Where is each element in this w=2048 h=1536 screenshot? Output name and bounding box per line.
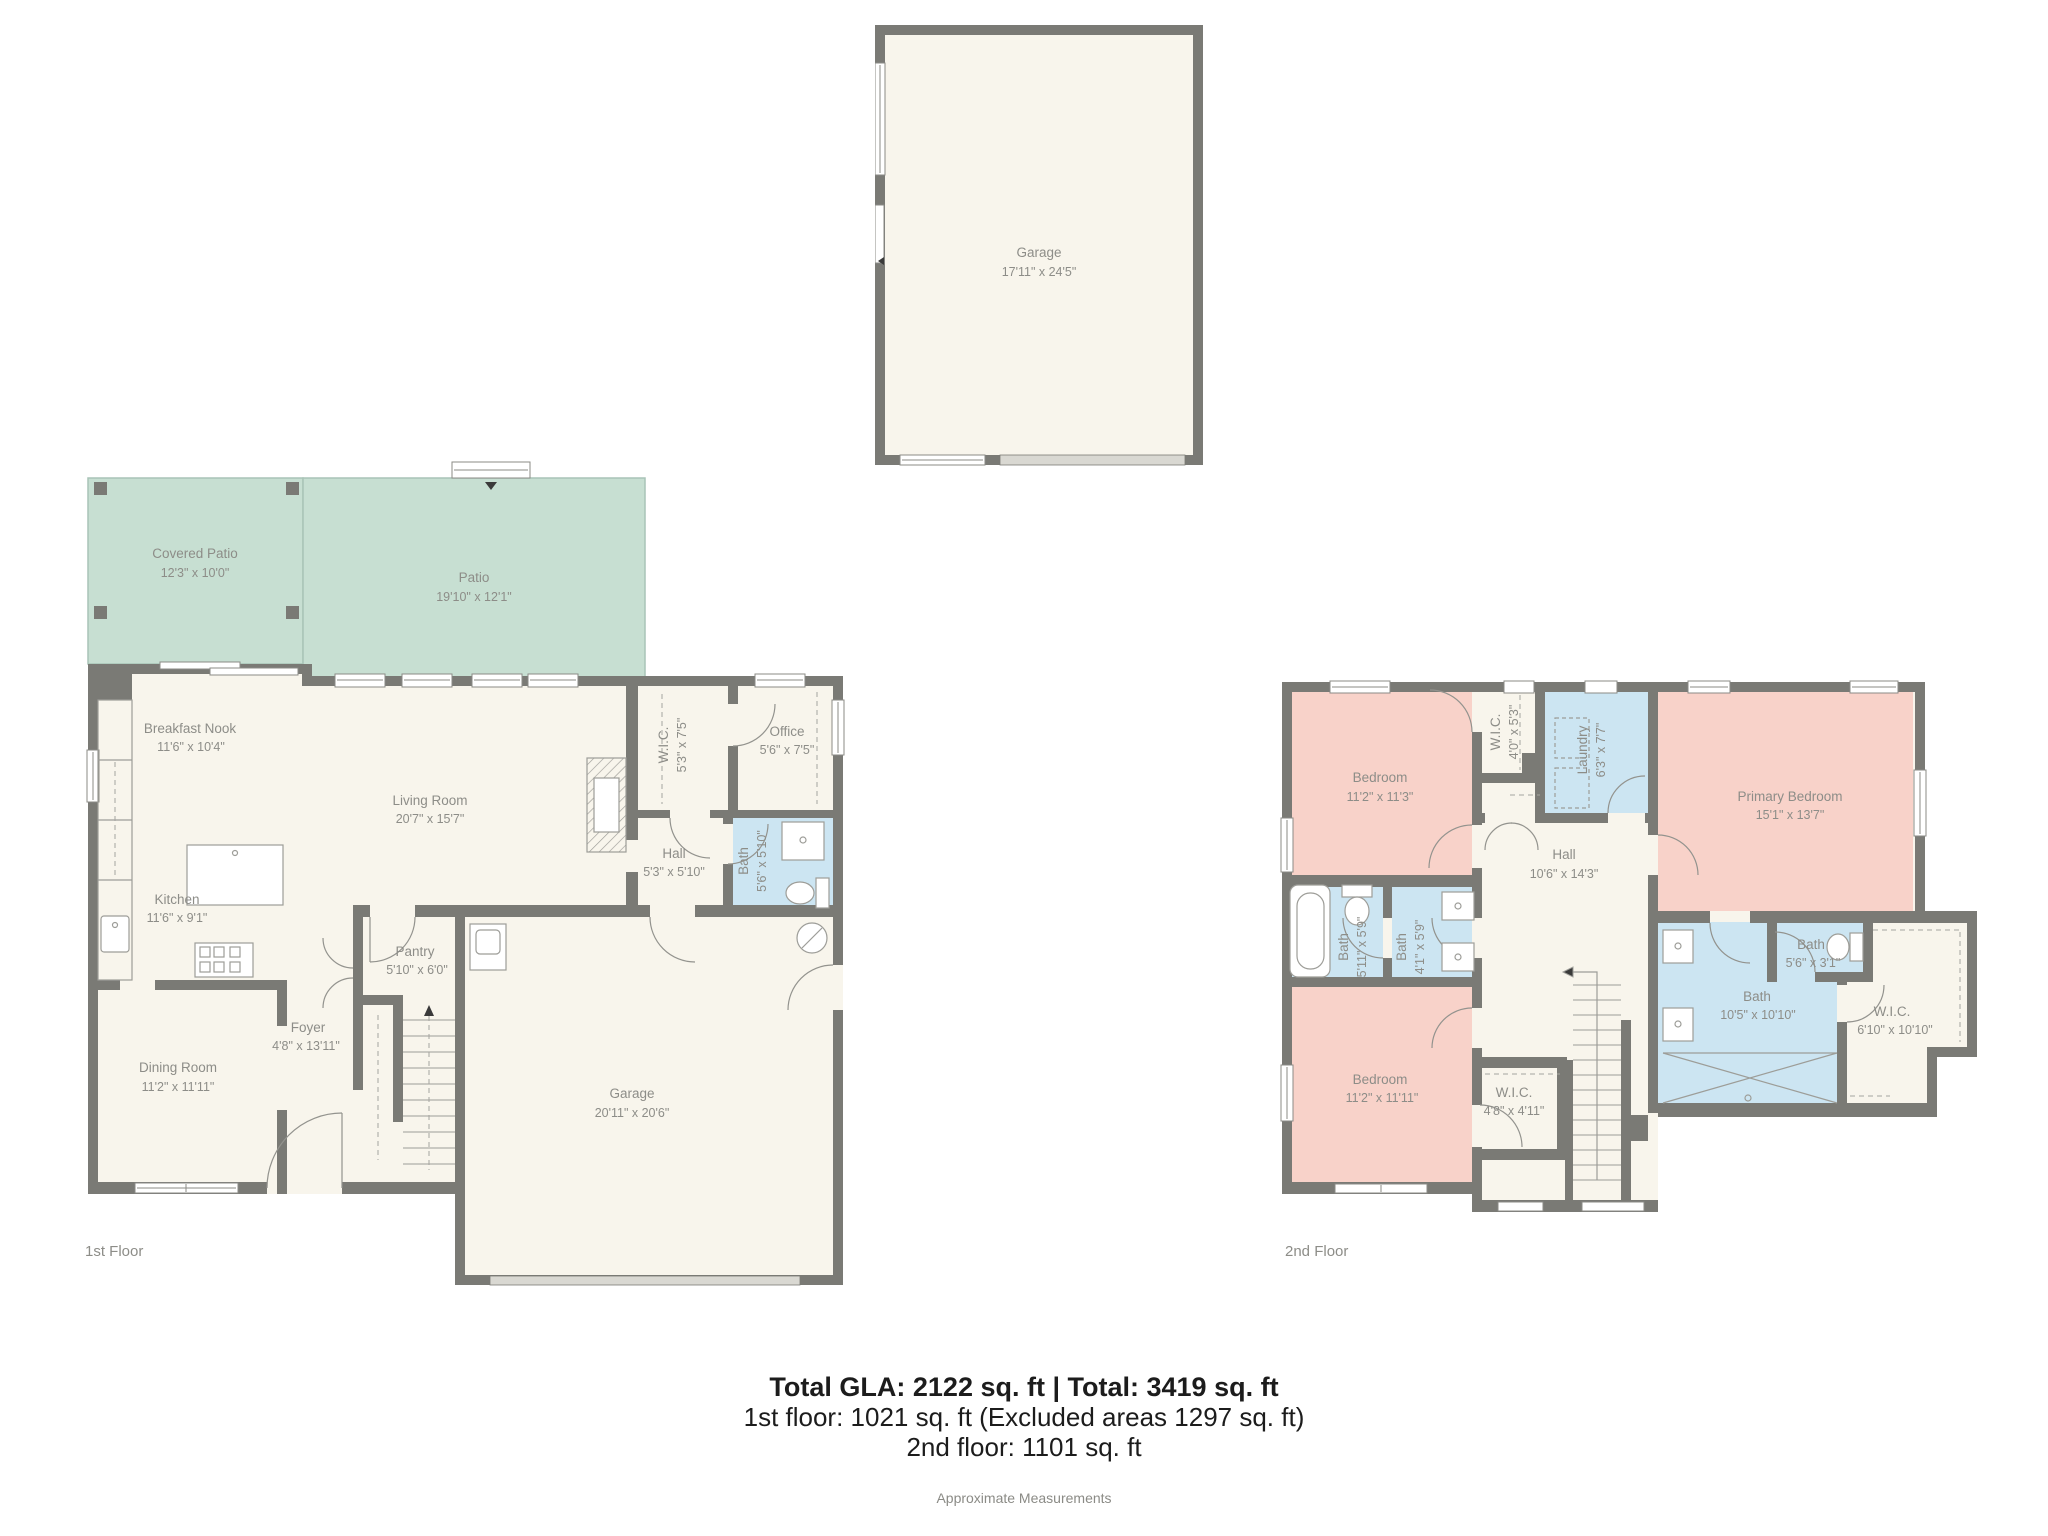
svg-text:Bath: Bath (1743, 989, 1771, 1004)
svg-text:Covered Patio: Covered Patio (152, 546, 238, 561)
svg-text:Hall: Hall (1552, 847, 1575, 862)
svg-text:17'11" x 24'5": 17'11" x 24'5" (1002, 265, 1077, 279)
svg-text:Foyer: Foyer (291, 1020, 326, 1035)
svg-text:4'0" x 5'3": 4'0" x 5'3" (1507, 705, 1521, 760)
detached-garage-plan: Garage 17'11" x 24'5" (875, 25, 1205, 470)
svg-text:5'10" x 6'0": 5'10" x 6'0" (386, 963, 448, 977)
svg-text:Laundry: Laundry (1575, 725, 1590, 774)
sink-icon (782, 822, 824, 860)
svg-text:W.I.C.: W.I.C. (1874, 1004, 1911, 1019)
svg-text:5'6" x 7'5": 5'6" x 7'5" (760, 743, 815, 757)
svg-text:Garage: Garage (1016, 245, 1061, 260)
svg-text:19'10" x 12'1": 19'10" x 12'1" (436, 590, 512, 604)
svg-text:11'6" x 10'4": 11'6" x 10'4" (157, 740, 225, 754)
first-floor-plan: Covered Patio 12'3" x 10'0" Patio 19'10"… (60, 460, 860, 1290)
floorplan-page: Garage 17'11" x 24'5" (0, 0, 2048, 1536)
total-gla: Total GLA: 2122 sq. ft | Total: 3419 sq.… (0, 1372, 2048, 1402)
second-floor-caption: 2nd Floor (1285, 1243, 1348, 1260)
svg-text:Office: Office (769, 724, 804, 739)
svg-text:Hall: Hall (662, 846, 685, 861)
svg-text:4'1" x 5'9": 4'1" x 5'9" (1413, 920, 1427, 975)
kitchen-sink-icon (101, 916, 129, 952)
svg-text:20'11" x 20'6": 20'11" x 20'6" (595, 1106, 670, 1120)
svg-text:5'11" x 5'9": 5'11" x 5'9" (1355, 917, 1369, 978)
first-floor-area: 1st floor: 1021 sq. ft (Excluded areas 1… (0, 1402, 2048, 1432)
svg-text:Garage: Garage (609, 1086, 654, 1101)
svg-text:5'3" x 7'5": 5'3" x 7'5" (675, 718, 689, 773)
svg-text:Bath: Bath (1336, 933, 1351, 961)
svg-text:20'7" x 15'7": 20'7" x 15'7" (396, 812, 465, 826)
svg-text:W.I.C.: W.I.C. (1488, 714, 1503, 751)
svg-text:Patio: Patio (459, 570, 490, 585)
svg-text:Bath: Bath (736, 847, 751, 875)
second-floor-plan: Bedroom 11'2" x 11'3" W.I.C. 4'0" x 5'3"… (1270, 670, 1990, 1270)
svg-text:Bath: Bath (1394, 933, 1409, 961)
second-floor-area: 2nd floor: 1101 sq. ft (0, 1432, 2048, 1462)
measurements-note: Approximate Measurements (0, 1490, 2048, 1506)
svg-text:5'6" x 3'1": 5'6" x 3'1" (1786, 956, 1841, 970)
svg-text:Breakfast Nook: Breakfast Nook (144, 721, 237, 736)
svg-text:6'10" x 10'10": 6'10" x 10'10" (1857, 1023, 1933, 1037)
svg-text:W.I.C.: W.I.C. (1496, 1085, 1533, 1100)
svg-text:11'2" x 11'11": 11'2" x 11'11" (142, 1080, 215, 1094)
svg-text:11'2" x 11'11": 11'2" x 11'11" (1346, 1091, 1419, 1105)
kitchen-island (187, 845, 283, 905)
svg-text:Bath: Bath (1797, 937, 1825, 952)
svg-text:12'3" x 10'0": 12'3" x 10'0" (161, 566, 230, 580)
svg-text:11'6" x 9'1": 11'6" x 9'1" (147, 911, 208, 925)
water-heater-icon (797, 923, 827, 953)
svg-text:4'8" x 4'11": 4'8" x 4'11" (1484, 1104, 1545, 1118)
sink-icon (1442, 943, 1474, 971)
svg-text:Kitchen: Kitchen (154, 892, 199, 907)
svg-text:10'5" x 10'10": 10'5" x 10'10" (1720, 1008, 1796, 1022)
svg-text:10'6" x 14'3": 10'6" x 14'3" (1530, 867, 1599, 881)
stove-icon (195, 943, 253, 977)
svg-text:W.I.C.: W.I.C. (656, 727, 671, 764)
svg-text:15'1" x 13'7": 15'1" x 13'7" (1756, 808, 1825, 822)
svg-text:Pantry: Pantry (395, 944, 434, 959)
bathtub-icon (1290, 885, 1330, 977)
sink-icon (1442, 892, 1474, 920)
svg-text:6'3" x 7'7": 6'3" x 7'7" (1594, 723, 1608, 778)
svg-text:Primary Bedroom: Primary Bedroom (1737, 789, 1842, 804)
svg-text:5'3" x 5'10": 5'3" x 5'10" (643, 865, 705, 879)
svg-text:Dining Room: Dining Room (139, 1060, 217, 1075)
svg-text:11'2" x 11'3": 11'2" x 11'3" (1347, 790, 1414, 804)
area-summary: Total GLA: 2122 sq. ft | Total: 3419 sq.… (0, 1372, 2048, 1506)
svg-text:5'6" x 5'10": 5'6" x 5'10" (755, 830, 769, 892)
garage-door (1000, 455, 1185, 465)
first-floor-caption: 1st Floor (85, 1243, 143, 1260)
svg-text:Bedroom: Bedroom (1353, 1072, 1408, 1087)
svg-text:4'8" x 13'11": 4'8" x 13'11" (272, 1039, 340, 1053)
sink-icon (1663, 930, 1693, 963)
svg-text:Living Room: Living Room (392, 793, 467, 808)
sink-icon (1663, 1008, 1693, 1041)
fireplace-icon (587, 758, 626, 852)
svg-text:Bedroom: Bedroom (1353, 770, 1408, 785)
